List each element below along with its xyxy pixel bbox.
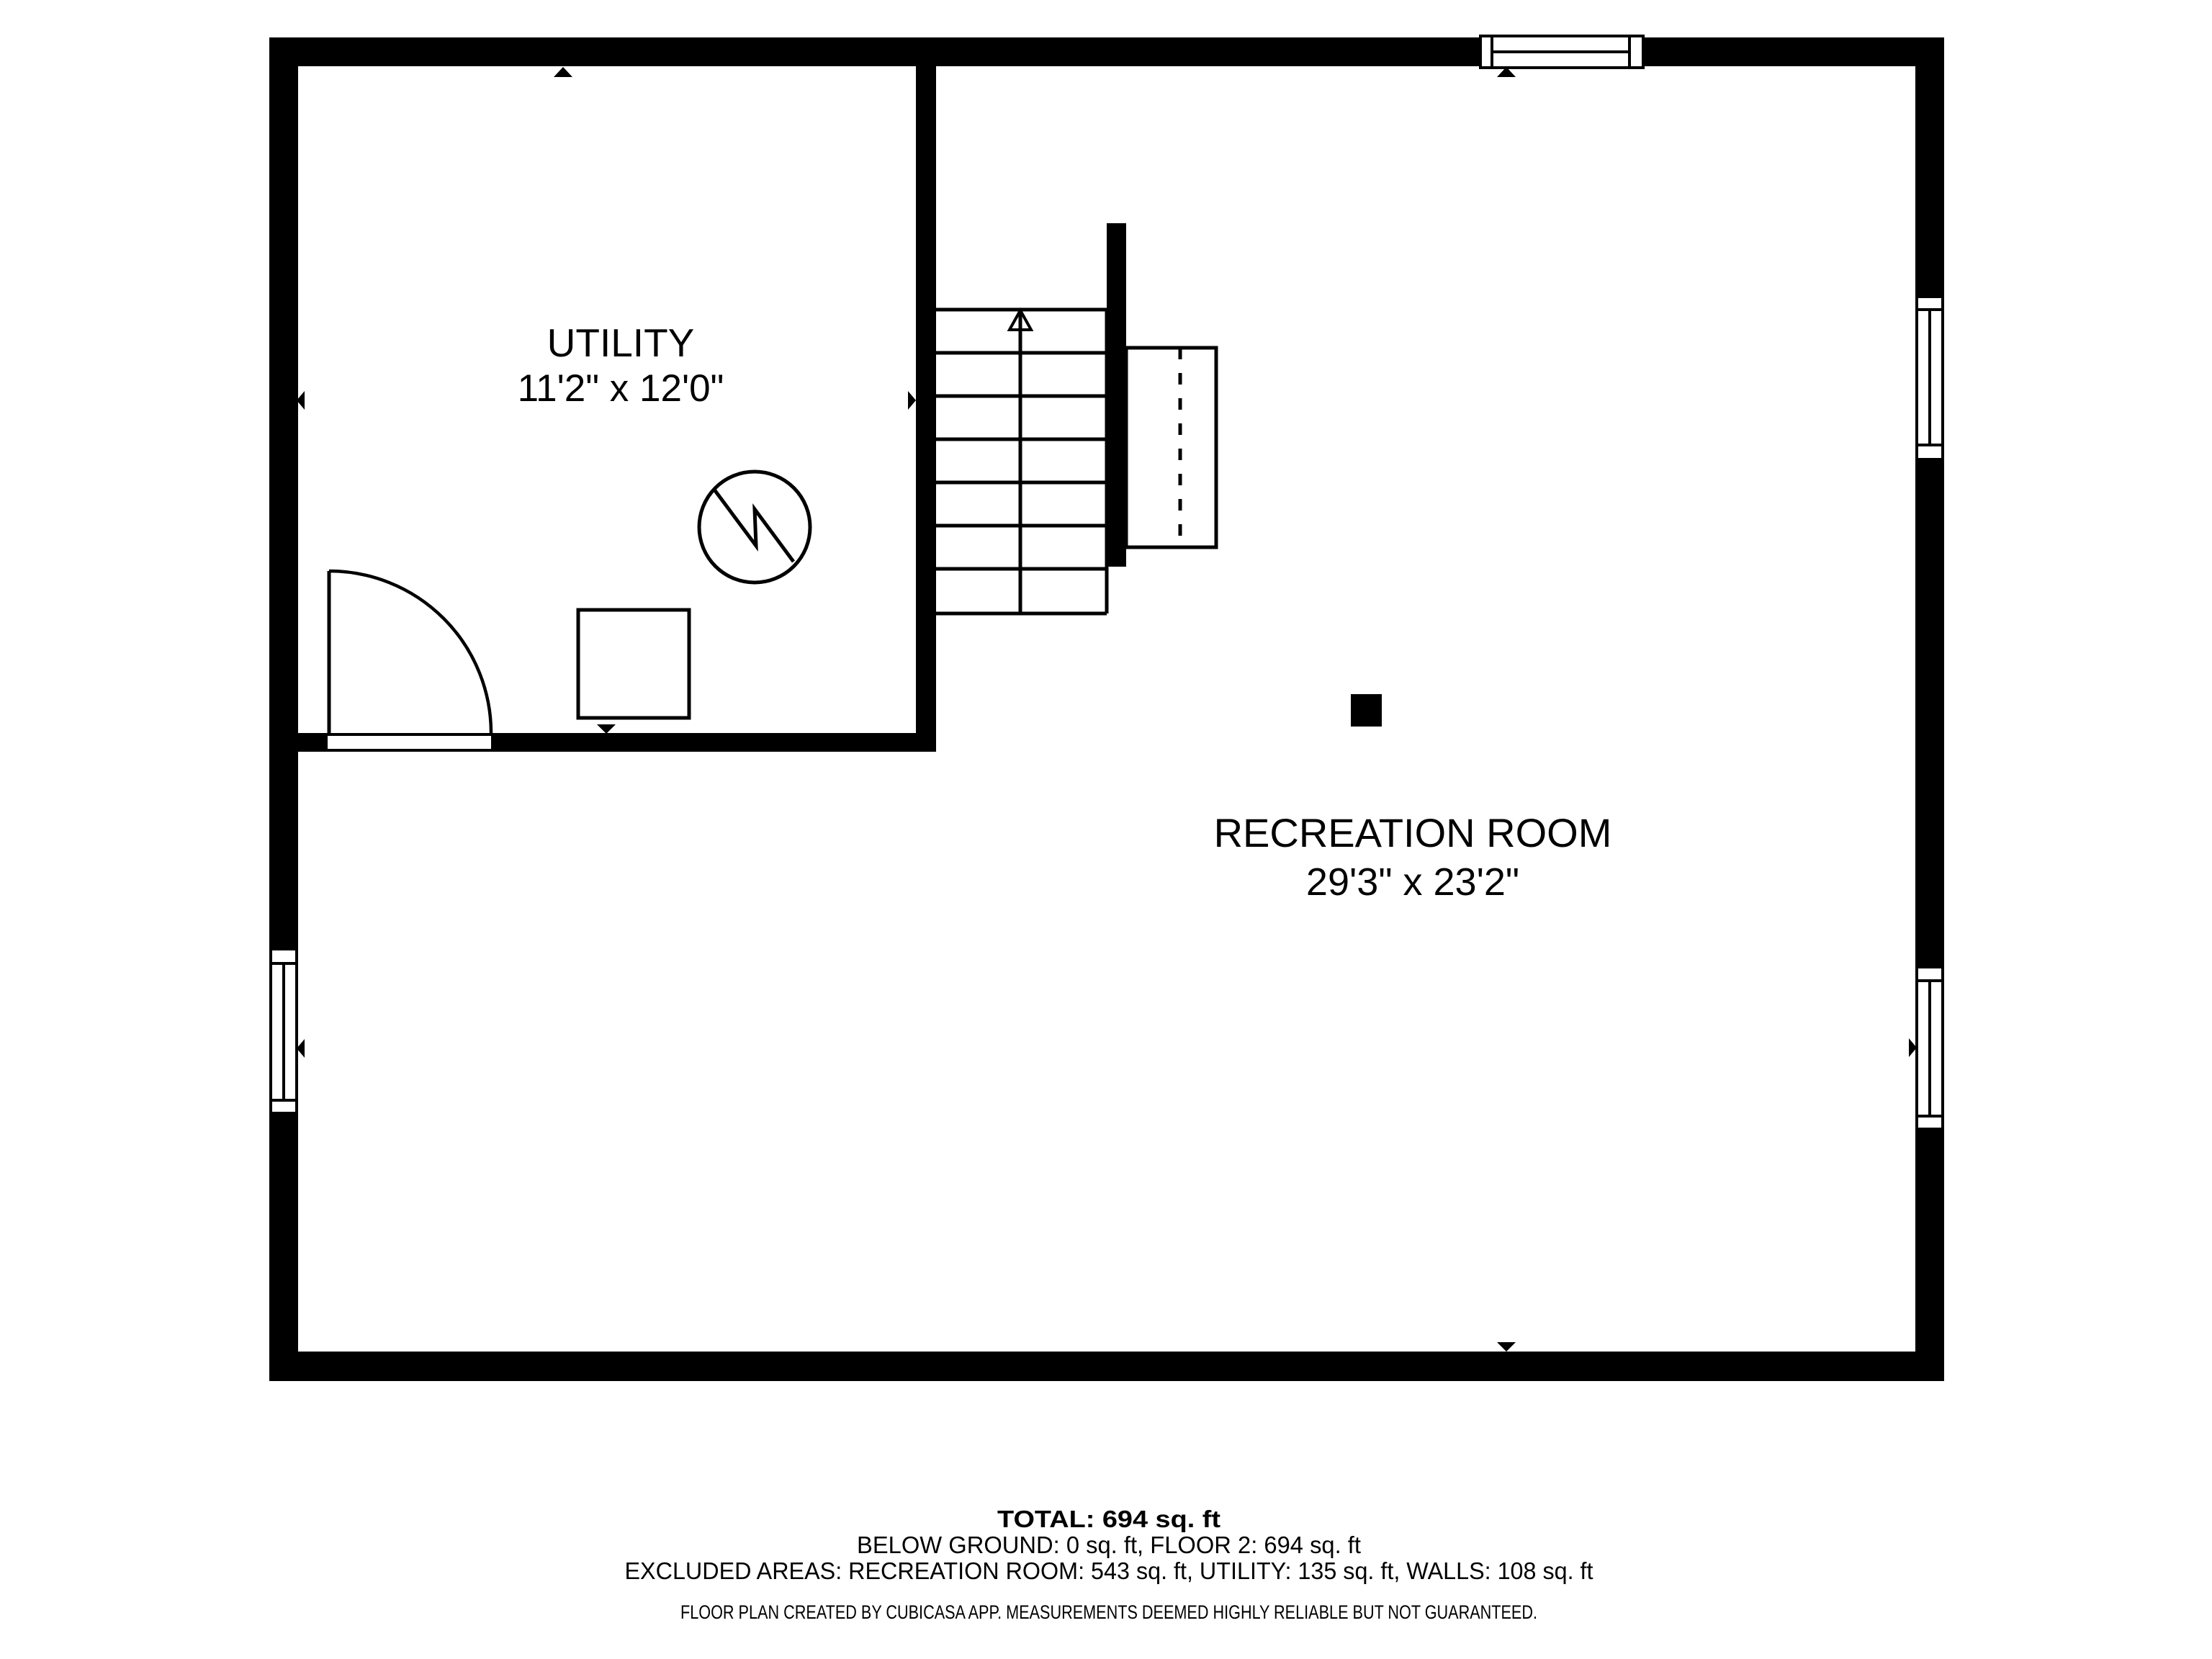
door-swing-arc	[329, 571, 491, 733]
window-top	[1480, 36, 1643, 68]
wall-direction-arrow	[554, 67, 572, 77]
floor-plan-page: UTILITY 11'2" x 12'0" RECREATION ROOM 29…	[0, 0, 2212, 1659]
wall-direction-arrow	[1497, 1342, 1516, 1352]
wall-top	[269, 37, 1944, 66]
utility-bottom-wall-left	[298, 733, 328, 752]
summary-disclaimer: FLOOR PLAN CREATED BY CUBICASA APP. MEAS…	[680, 1601, 1537, 1623]
window-right-lower	[1917, 967, 1943, 1129]
wall-direction-arrow	[597, 724, 616, 734]
door-utility	[328, 571, 491, 752]
utility-bottom-wall-right	[491, 733, 936, 752]
utility-right-wall	[916, 66, 936, 752]
room-dims-utility: 11'2" x 12'0"	[518, 367, 724, 410]
water-heater-icon	[699, 472, 810, 583]
room-dims-recreation: 29'3" x 23'2"	[1306, 860, 1519, 904]
floor-plan: UTILITY 11'2" x 12'0" RECREATION ROOM 29…	[0, 0, 2212, 1659]
window-left	[271, 949, 297, 1113]
wall-left	[269, 37, 298, 1381]
room-label-recreation: RECREATION ROOM	[1214, 810, 1612, 855]
room-label-utility: UTILITY	[547, 320, 695, 365]
dashed-overhang-outline	[1126, 348, 1216, 547]
wall-right	[1915, 37, 1944, 1381]
window-right-upper	[1917, 297, 1943, 459]
stair-wall-segment	[1107, 223, 1126, 567]
wall-bottom	[269, 1352, 1944, 1381]
wall-direction-arrow	[908, 391, 916, 410]
summary-excluded: EXCLUDED AREAS: RECREATION ROOM: 543 sq.…	[625, 1557, 1593, 1584]
chimney-block	[1351, 694, 1382, 727]
summary-floors: BELOW GROUND: 0 sq. ft, FLOOR 2: 694 sq.…	[857, 1532, 1361, 1558]
furnace-square-icon	[578, 610, 689, 718]
summary-total: TOTAL: 694 sq. ft	[997, 1506, 1220, 1532]
